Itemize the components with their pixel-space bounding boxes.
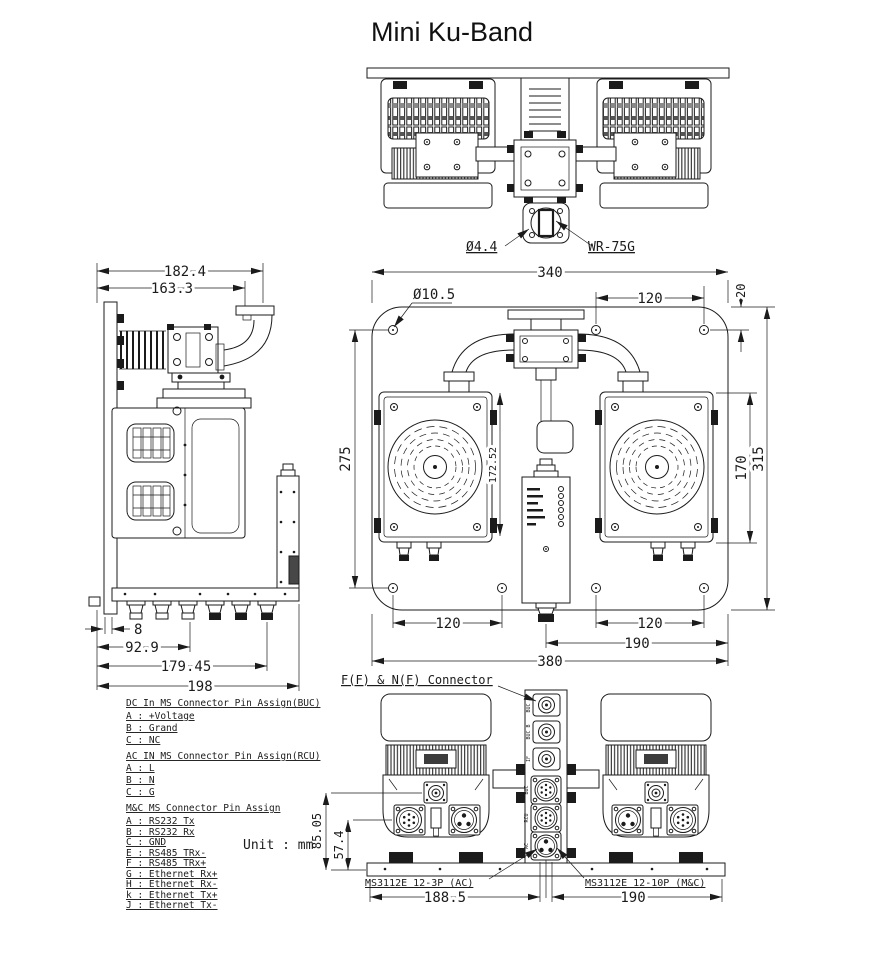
dim-275: 275 — [338, 446, 354, 471]
mc-note-heading: M&C MS Connector Pin Assign — [126, 803, 280, 814]
dc-note-item: B : Grand — [126, 723, 177, 734]
wr75g-flange — [523, 203, 569, 243]
dc-note-heading: DC In MS Connector Pin Assign(BUC) — [126, 698, 320, 709]
svg-text:BUC B: BUC B — [526, 724, 532, 739]
mc-note-item: F : RS485 TRx+ — [126, 858, 206, 869]
svg-text:AC: AC — [524, 843, 530, 849]
side-view: 182.4 163.3 8 92.9 179.45 198 — [85, 263, 299, 695]
dim-170: 170 — [734, 455, 750, 480]
unit-note: Unit : mm — [243, 838, 314, 853]
drawing-page: Mini Ku-Band — [0, 0, 886, 964]
dim-198: 198 — [187, 679, 212, 695]
dim-120-top: 120 — [637, 291, 662, 307]
control-panel — [522, 459, 570, 622]
fnf-connector-note: F(F) & N(F) Connector — [341, 673, 493, 687]
dim-92-9: 92.9 — [125, 640, 159, 656]
pin-assignment-notes: DC In MS Connector Pin Assign(BUC) A : +… — [126, 698, 320, 911]
bottom-view: BUC A BUC B IF BUC — [310, 673, 725, 906]
mc-connector-label: MS3112E 12-10P (M&C) — [585, 878, 705, 889]
bottom-view-buc-unit — [381, 694, 491, 863]
dim-182-4: 182.4 — [164, 264, 206, 280]
waveguide-label: WR-75G — [588, 240, 635, 255]
cad-drawing: Mini Ku-Band — [0, 0, 886, 964]
ac-note-item: C : G — [126, 787, 155, 798]
dim-380: 380 — [537, 654, 562, 670]
dim-20: 20 — [734, 284, 748, 298]
side-bottom-connectors — [127, 601, 276, 620]
mc-note-item: H : Ethernet Rx- — [126, 879, 218, 890]
dim-57-4: 57.4 — [332, 831, 346, 860]
dim-190-front: 190 — [624, 636, 649, 652]
dim-179-45: 179.45 — [161, 659, 212, 675]
svg-text:IF: IF — [526, 756, 532, 762]
mc-note-item: C : GND — [126, 837, 166, 848]
dim-8: 8 — [134, 622, 142, 638]
front-view: 340 Ø10.5 120 20 275 172.52 170 — [338, 265, 775, 670]
ac-note-item: A : L — [126, 763, 155, 774]
mc-note-item: A : RS232 Tx — [126, 816, 195, 827]
dim-163-3: 163.3 — [151, 281, 193, 297]
dim-340: 340 — [537, 265, 562, 281]
svg-text:BUC: BUC — [524, 785, 530, 794]
dim-120-bl: 120 — [435, 616, 460, 632]
ac-connector-label: MS3112E 12-3P (AC) — [365, 878, 473, 889]
top-view-buc-unit — [381, 79, 495, 208]
dim-315: 315 — [751, 446, 767, 471]
dc-note-item: C : NC — [126, 735, 160, 746]
dim-120-br: 120 — [637, 616, 662, 632]
dc-note-item: A : +Voltage — [126, 711, 195, 722]
svg-text:BUC A: BUC A — [526, 697, 532, 712]
top-view-waveguide — [507, 78, 583, 243]
front-view-buc-fan — [374, 392, 497, 561]
page-title: Mini Ku-Band — [371, 17, 533, 47]
connector-column: BUC A BUC B IF BUC — [516, 690, 576, 865]
dim-hole-dia: Ø10.5 — [413, 287, 455, 303]
ac-note-heading: AC IN MS Connector Pin Assign(RCU) — [126, 751, 320, 762]
hole-dia-label: Ø4.4 — [466, 240, 497, 255]
ac-note-item: B : N — [126, 775, 155, 786]
dim-172-52: 172.52 — [488, 447, 499, 483]
dim-188-5: 188.5 — [424, 890, 466, 906]
mc-note-item: J : Ethernet Tx- — [126, 900, 218, 911]
top-view: Ø4.4 WR-75G — [367, 68, 729, 255]
svg-text:RCU: RCU — [524, 813, 530, 822]
dim-190-bottom: 190 — [620, 890, 645, 906]
